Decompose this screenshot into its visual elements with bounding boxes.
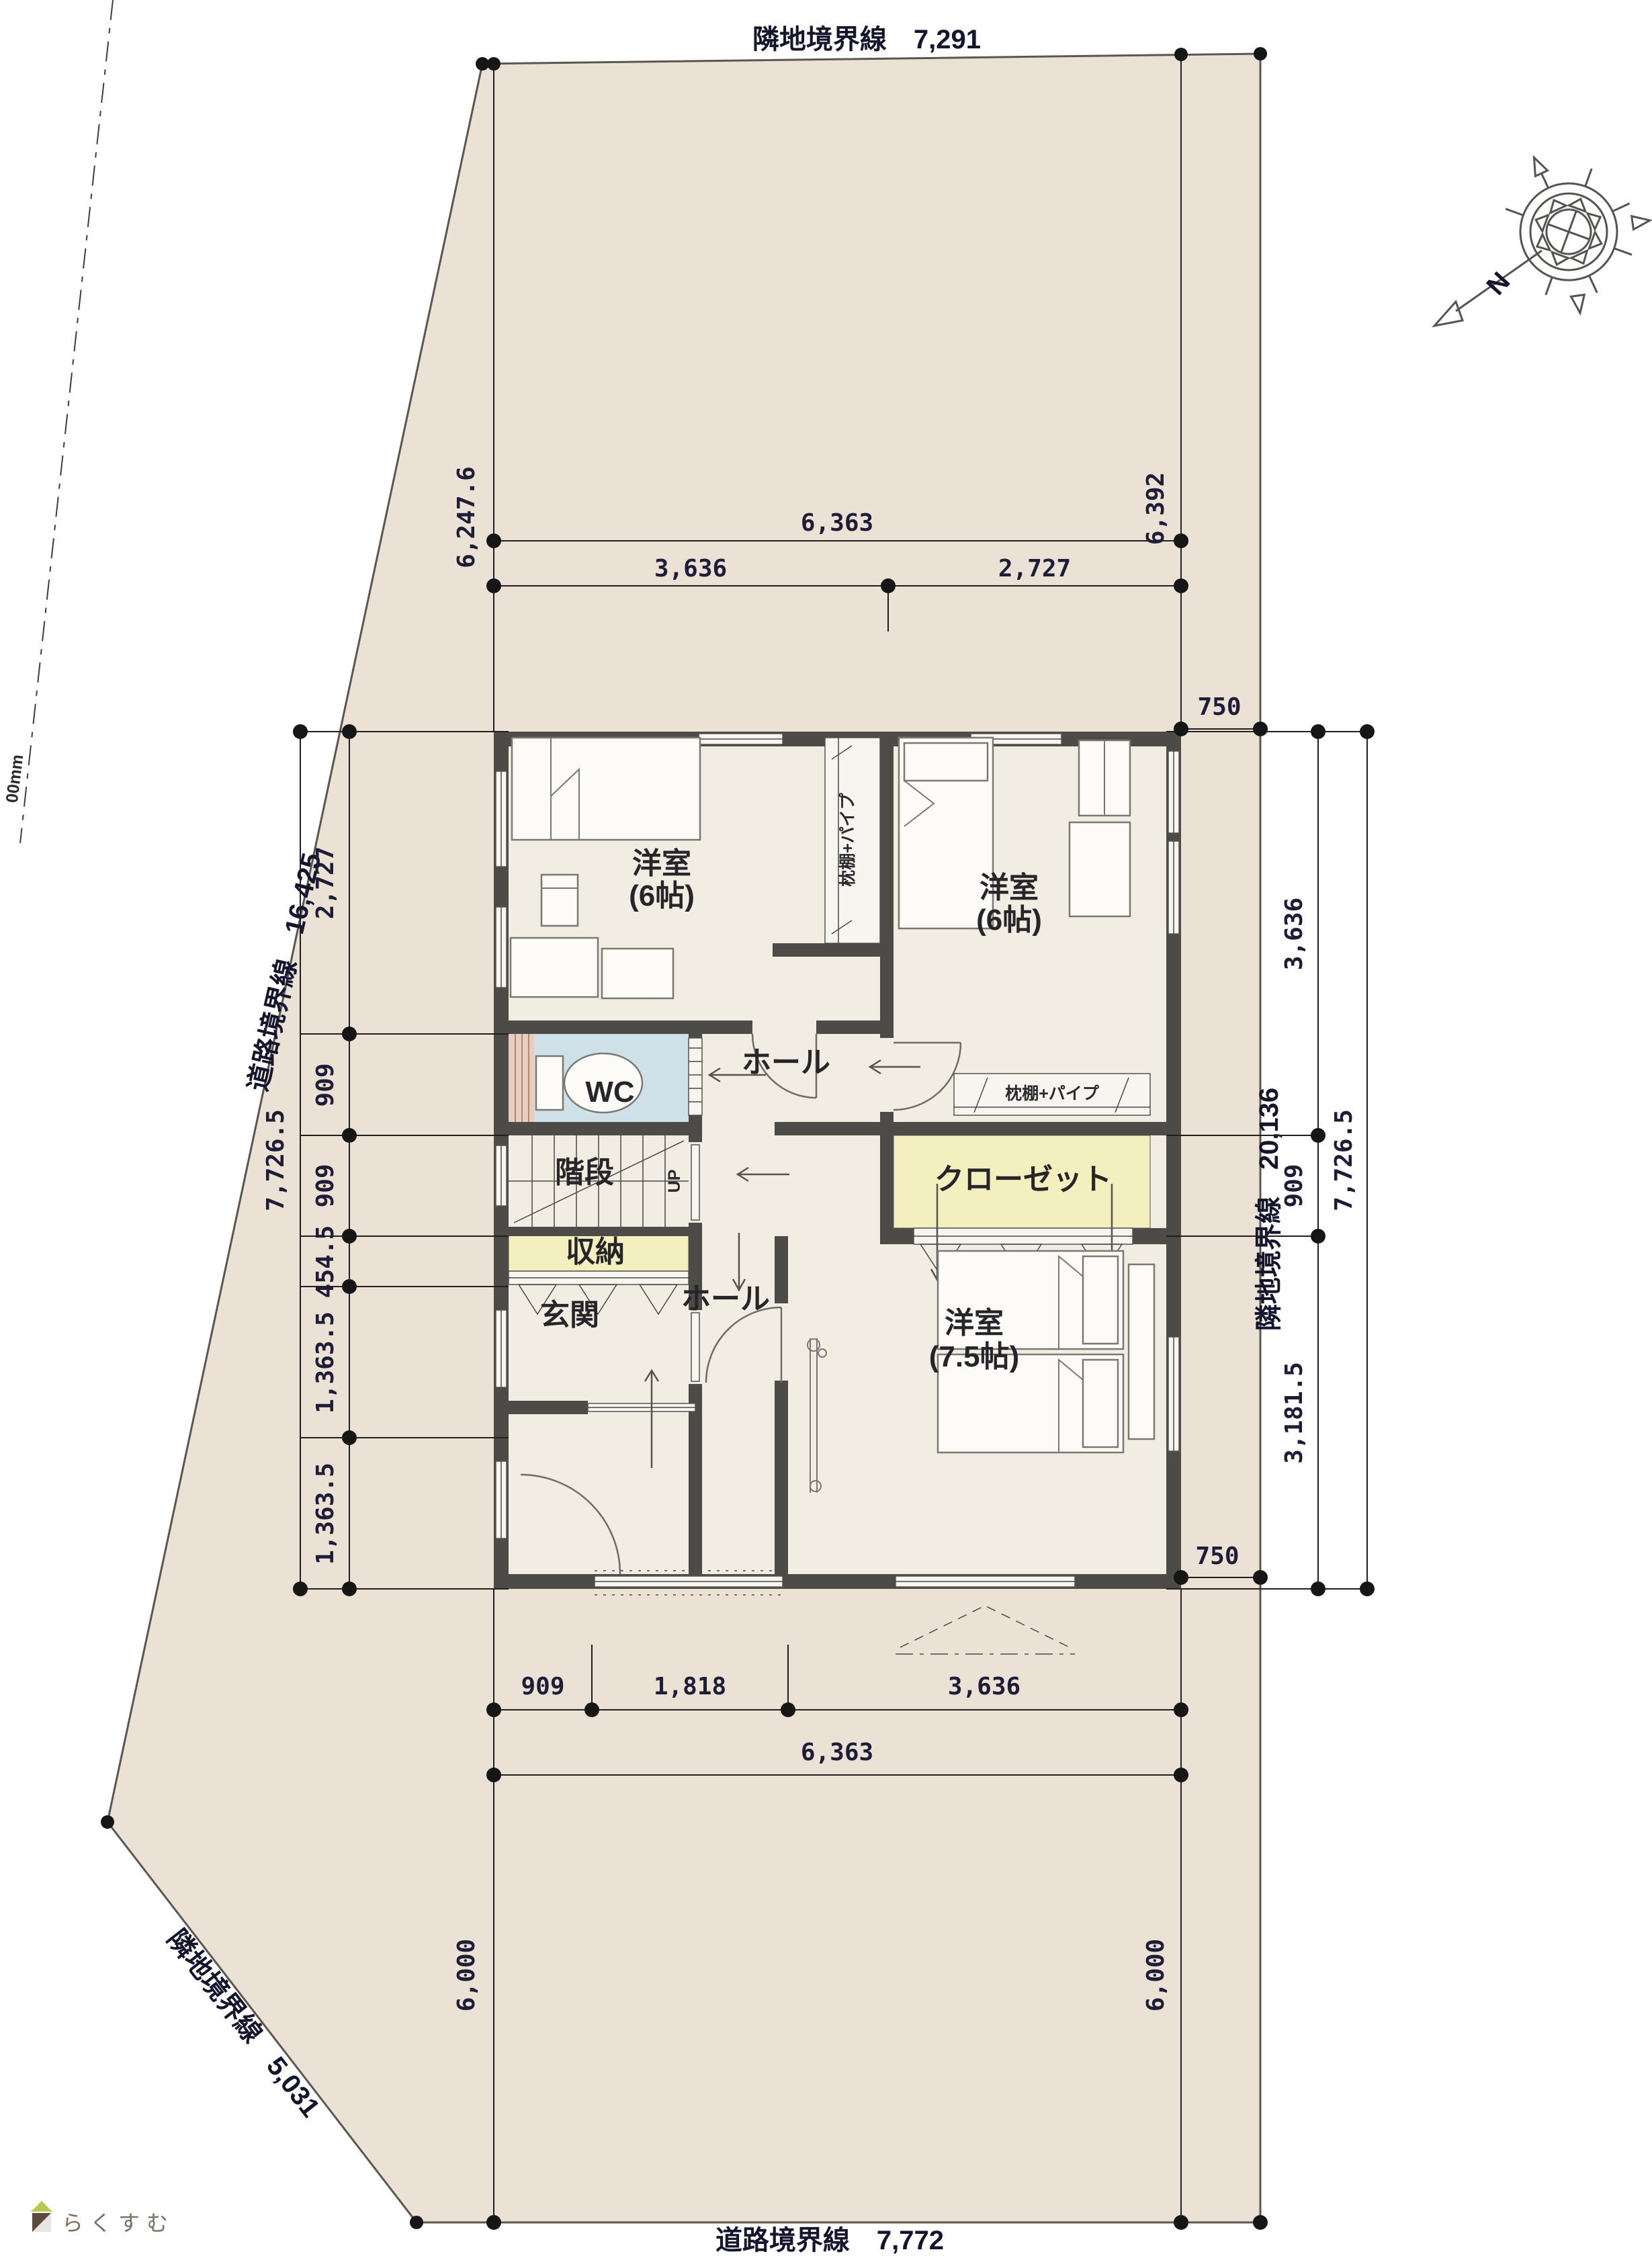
north-arrow-head [1434,302,1463,326]
label-room-ne-size: (6帖) [976,904,1042,937]
cabinet-nw [602,949,673,998]
dim-left-1: 909 [312,1063,339,1107]
site-plan-drawing: 00mm 隣地境界線 7,291 道路境界線 16,425 隣地境界線 5,03… [0,0,1652,2256]
label-room-nw-size: (6帖) [629,879,695,912]
boundary-label-right: 隣地境界線 20,136 [1254,1088,1284,1331]
label-hall-lower: ホール [681,1283,770,1315]
dim-top-w: 6,363 [801,509,873,537]
label-up: UP [665,1170,684,1193]
label-closet: クローゼット [934,1163,1112,1196]
label-room-s-size: (7.5帖) [929,1340,1019,1373]
label-hall-upper: ホール [742,1046,830,1079]
boundary-label-top: 隣地境界線 7,291 [752,25,981,54]
dim-top-right-v: 6,392 [1142,472,1170,545]
watermark: らくすむ [31,2201,175,2235]
dim-right-2: 3,181.5 [1280,1362,1308,1464]
label-room-s: 洋室 [945,1306,1004,1340]
label-room-ne: 洋室 [980,871,1039,904]
label-shelf-nw: 枕棚+パイプ [838,792,857,887]
desk-nw [541,875,578,926]
dim-left-total: 7,726.5 [262,1109,290,1211]
desk-ne [1070,822,1130,916]
dim-bottom-2: 3,636 [948,1673,1020,1700]
watermark-house-roof [31,2201,52,2212]
dim-left-4: 1,363.5 [312,1311,339,1414]
label-wc: WC [585,1076,634,1109]
desk-s [1129,1264,1154,1439]
dim-left-3: 454.5 [312,1225,339,1298]
toilet-tank [536,1056,563,1110]
floor-plan-page: 00mm 隣地境界線 7,291 道路境界線 16,425 隣地境界線 5,03… [0,0,1652,2256]
dim-right-total: 7,726.5 [1330,1109,1358,1211]
dim-left-2: 909 [312,1164,339,1207]
sofa-nw [511,938,598,997]
dim-top-w1: 3,636 [654,555,727,582]
label-stairs: 階段 [555,1156,614,1189]
dim-bottom-left-v: 6,000 [453,1939,480,2011]
dim-right-0: 3,636 [1280,898,1308,970]
dim-top-left-v: 6,247.6 [453,466,480,568]
label-room-nw: 洋室 [632,847,691,880]
label-entrance: 玄関 [540,1299,599,1332]
dim-750-top: 750 [1197,693,1241,721]
dim-left-5: 1,363.5 [312,1463,339,1565]
dim-750-bottom: 750 [1195,1543,1239,1570]
boundary-label-bottom: 道路境界線 7,772 [715,2226,944,2255]
dim-top-w2: 2,727 [998,555,1071,582]
dim-bottom-w: 6,363 [801,1739,873,1766]
dim-bottom-right-v: 6,000 [1142,1939,1170,2011]
bed-nw [512,738,700,840]
dim-left-0: 2,727 [312,847,339,919]
dim-right-1: 909 [1280,1164,1308,1207]
dim-bottom-0: 909 [521,1673,564,1700]
watermark-text: らくすむ [62,2211,175,2235]
road-centerline [20,0,113,843]
road-width-note: 00mm [3,753,28,804]
label-shelf-ne: 枕棚+パイプ [1005,1084,1100,1103]
label-storage: 収納 [566,1235,625,1268]
dim-bottom-1: 1,818 [654,1673,726,1700]
compass-rose: N [1434,146,1652,329]
